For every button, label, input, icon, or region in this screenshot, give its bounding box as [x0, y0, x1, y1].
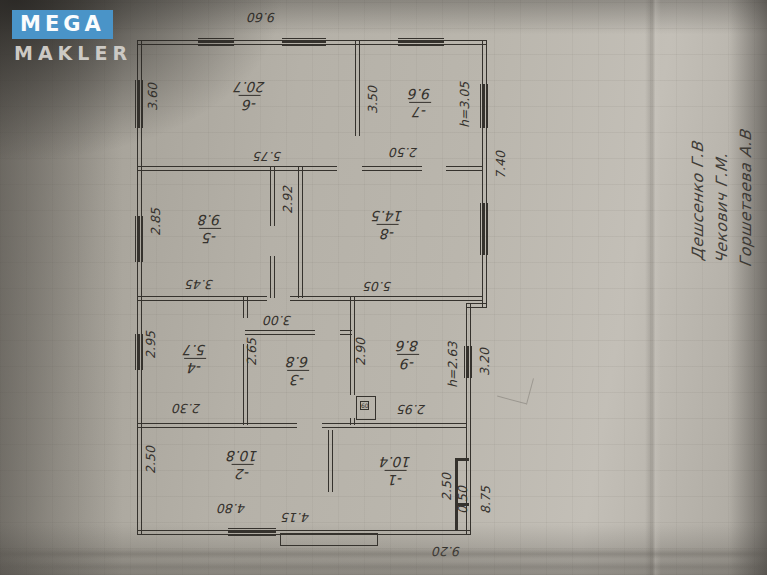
room-area: 14.5 [372, 207, 403, 223]
wall [322, 423, 466, 428]
dimension-label: 3.50 [365, 86, 380, 114]
room-area: 5.7 [184, 341, 206, 357]
dimension-label: 2.50 [143, 446, 158, 474]
dimension-label: 2.30 [173, 401, 201, 416]
wall [137, 166, 337, 171]
dimension-label: 3.45 [186, 277, 214, 292]
dimension-label: 3.20 [477, 348, 492, 376]
dimension-label: 0.50 [455, 486, 470, 514]
room-label-4: -4 5.7 [184, 341, 206, 375]
room-label-3: -3 6.8 [287, 353, 309, 387]
window-hatch [198, 38, 234, 47]
room-label-9: -9 8.6 [397, 337, 419, 371]
handwritten-line: Дешсенко Г.В [686, 121, 710, 262]
dimension-label: 5.05 [364, 279, 392, 294]
handwritten-line: Чекович Г.М. [710, 125, 734, 266]
window-hatch [464, 346, 473, 378]
wall [355, 40, 360, 136]
watermark-logo: MEGA MAKLER [12, 10, 132, 64]
wall [270, 166, 275, 226]
closet-partition [455, 458, 469, 461]
wall [446, 166, 482, 171]
dimension-label: 2.50 [439, 473, 454, 501]
room-label-5: -5 9.8 [199, 211, 221, 245]
window-hatch [135, 80, 144, 128]
dimension-label: 3.60 [145, 83, 160, 111]
room-area: 9.6 [409, 85, 431, 101]
porch-steps [280, 533, 378, 546]
floorplan-photo: 60 -6 20.7 -7 9.6 -5 9.8 -8 14.5 -4 5.7 … [0, 0, 767, 575]
stove-icon: 60 [356, 396, 376, 420]
room-number: -8 [377, 224, 399, 241]
wall [245, 330, 315, 335]
dimension-label: 2.95 [143, 331, 158, 359]
room-label-8: -8 14.5 [372, 207, 403, 241]
window-hatch [282, 38, 326, 47]
window-hatch [480, 203, 489, 255]
dimension-label: h=2.63 [445, 342, 460, 388]
window-hatch [398, 38, 444, 47]
dimension-label: 9.60 [248, 10, 276, 25]
logo-makler: MAKLER [12, 42, 132, 64]
stove-mark: 60 [360, 401, 369, 410]
room-number: -3 [287, 370, 309, 387]
dimension-label: 2.65 [244, 338, 259, 366]
dimension-label: h=3.05 [457, 82, 472, 128]
dimension-label: 5.75 [254, 149, 282, 164]
room-label-2: -2 10.8 [227, 447, 258, 481]
room-area: 10.4 [380, 453, 411, 469]
wall [137, 423, 297, 428]
dimension-label: 4.80 [218, 501, 246, 516]
dimension-label: 2.85 [148, 208, 163, 236]
room-area: 20.7 [234, 78, 265, 94]
wall [270, 256, 275, 298]
dimension-label: 2.92 [280, 186, 295, 214]
dimension-label: 9.20 [433, 544, 461, 559]
wall [482, 40, 487, 308]
window-hatch [135, 216, 144, 262]
handwritten-line: Горшетаева А.В [734, 128, 758, 269]
dimension-label: 2.90 [353, 338, 368, 366]
handwritten-names: Дешсенко Г.В Чекович Г.М. Горшетаева А.В [686, 121, 758, 268]
dimension-label: 2.95 [398, 402, 426, 417]
wall [298, 166, 303, 298]
wall [290, 296, 482, 301]
dimension-label: 7.40 [493, 151, 508, 179]
wall [243, 296, 248, 318]
room-area: 6.8 [287, 353, 309, 369]
room-label-6: -6 20.7 [234, 78, 265, 112]
room-label-7: -7 9.6 [409, 85, 431, 119]
window-hatch [228, 528, 276, 537]
logo-mega: MEGA [12, 10, 113, 39]
dimension-label: 3.00 [264, 313, 292, 328]
room-number: -2 [232, 464, 254, 481]
window-hatch [480, 84, 489, 128]
room-number: -6 [239, 95, 261, 112]
room-number: -9 [397, 354, 419, 371]
room-label-1: -1 10.4 [380, 453, 411, 487]
room-area: 8.6 [397, 337, 419, 353]
room-area: 10.8 [227, 447, 258, 463]
dimension-label: 4.15 [282, 510, 310, 525]
room-number: -7 [409, 102, 431, 119]
room-number: -1 [385, 470, 407, 487]
room-number: -4 [184, 358, 206, 375]
room-area: 9.8 [199, 211, 221, 227]
wall [328, 430, 333, 492]
wall [362, 166, 422, 171]
dimension-label: 8.75 [478, 486, 493, 514]
dimension-label: 2.50 [390, 145, 418, 160]
room-number: -5 [199, 228, 221, 245]
